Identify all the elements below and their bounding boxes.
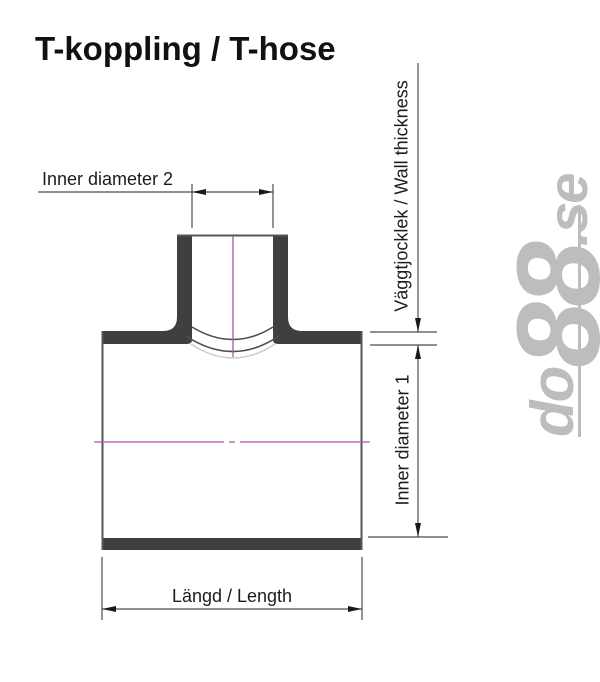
dim-inner-diameter-2 — [38, 184, 273, 228]
wall-thickness-label: Väggtjocklek / Wall thickness — [392, 80, 413, 311]
right-wall-section — [273, 235, 362, 344]
diagram-page: T-koppling / T-hose — [0, 0, 600, 682]
arrow-left — [192, 189, 206, 195]
inner-diameter-1-label: Inner diameter 1 — [393, 374, 414, 505]
arrow-up — [415, 345, 421, 359]
left-wall-section — [102, 235, 192, 344]
length-label: Längd / Length — [172, 586, 292, 607]
t-fitting-walls — [102, 235, 362, 550]
bottom-wall — [102, 538, 362, 550]
watermark-suffix: .se — [536, 175, 599, 247]
arrow-left — [102, 606, 116, 612]
arrow-right — [348, 606, 362, 612]
watermark-prefix: do — [519, 368, 586, 437]
arrow-down — [415, 318, 421, 332]
arrow-right — [259, 189, 273, 195]
watermark-underline — [578, 205, 581, 437]
pipe-outlines — [103, 236, 362, 551]
inner-diameter-2-label: Inner diameter 2 — [42, 169, 173, 190]
watermark-number: 88 — [493, 246, 600, 367]
arrow-down — [415, 523, 421, 537]
do88-watermark: do88.se — [505, 107, 600, 437]
